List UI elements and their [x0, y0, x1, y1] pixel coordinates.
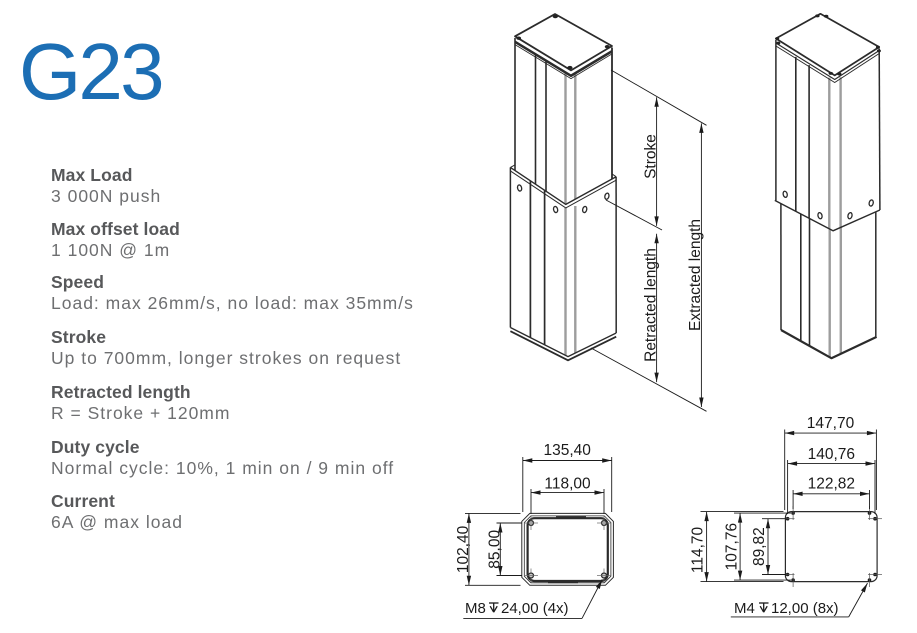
- svg-text:89,82: 89,82: [751, 527, 768, 566]
- svg-text:24,00 (4x): 24,00 (4x): [501, 600, 569, 617]
- svg-text:12,00 (8x): 12,00 (8x): [771, 600, 839, 617]
- svg-text:Retracted length: Retracted length: [642, 248, 659, 362]
- svg-text:114,70: 114,70: [690, 526, 707, 573]
- svg-text:Stroke: Stroke: [642, 134, 659, 179]
- svg-text:140,76: 140,76: [808, 446, 855, 463]
- svg-text:147,70: 147,70: [807, 415, 855, 432]
- svg-text:M4: M4: [734, 600, 755, 617]
- svg-text:102,40: 102,40: [455, 525, 472, 573]
- svg-text:Extracted length: Extracted length: [687, 219, 704, 331]
- svg-text:118,00: 118,00: [544, 475, 591, 492]
- svg-text:122,82: 122,82: [808, 476, 855, 493]
- svg-text:107,76: 107,76: [724, 523, 741, 570]
- svg-text:85,00: 85,00: [486, 530, 503, 569]
- svg-text:135,40: 135,40: [543, 442, 591, 459]
- svg-text:M8: M8: [465, 600, 486, 617]
